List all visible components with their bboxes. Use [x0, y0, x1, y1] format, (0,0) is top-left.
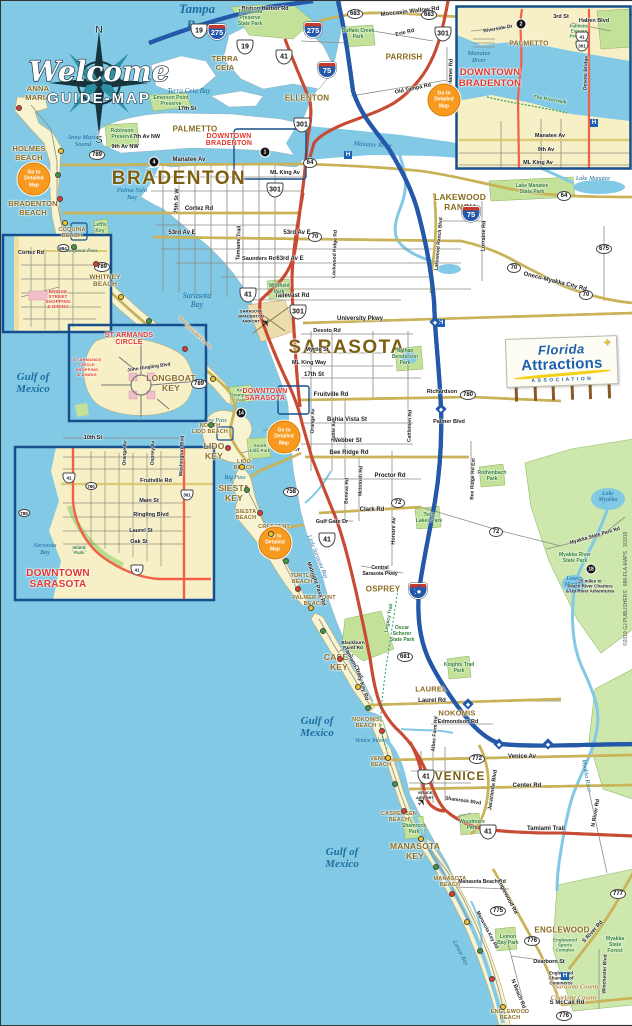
rd-label-john-ringling-blvd: John Ringling Blvd	[127, 362, 171, 373]
route-shield-684: 684	[57, 244, 69, 252]
route-shield-789: 789	[18, 509, 30, 517]
rd-label-lakewood-ranch-blvd: Lakewood Ranch Blvd	[434, 217, 445, 271]
rd-label-albee-farm-rd: Albee Farm Rd	[430, 716, 439, 752]
pk-label-whitfield-park: Whitfield Park	[268, 283, 289, 295]
rd-label-n-river-rd: N River Rd	[591, 799, 602, 828]
route-shield-772: 772	[469, 754, 485, 764]
rd-label-10th-st: 10th St	[84, 435, 102, 441]
beach-access-dot	[379, 728, 385, 734]
pk-label-shamrock-park: Shamrock Park	[402, 823, 426, 835]
ci-label-bradenton-beach: BRADENTON BEACH	[8, 199, 58, 217]
rd-label-63rd-av-e: 63rd Av E	[276, 256, 303, 262]
rd-label-oak-st: Oak St	[130, 539, 147, 545]
go-to-detailed-map-button-2[interactable]: Go to Detailed Map	[428, 84, 461, 117]
rd-label-beneva-rd: Beneva Rd	[344, 478, 351, 504]
rd-label-dearborn-st: Dearborn St	[533, 959, 564, 965]
beach-access-dot	[118, 294, 124, 300]
rd-label-webber-st: Webber St	[332, 438, 362, 444]
rd-label-osprey-av: Osprey Av	[150, 441, 157, 466]
route-shield-41: 41	[63, 473, 76, 484]
route-shield-41: 41	[418, 770, 435, 785]
rd-label-bee-ridge-rd: Bee Ridge Rd	[329, 450, 368, 456]
rd-label-old-tampa-rd: Old Tampa Rd	[394, 82, 431, 96]
route-shield-777: 777	[610, 889, 626, 899]
beach-access-dot	[146, 318, 152, 324]
route-shield-758: 758	[283, 487, 299, 497]
pk-label-myakka-river-state-park: Myakka River State Park	[559, 552, 591, 564]
rd-label-cattlemen-rd: Cattlemen Rd	[406, 410, 413, 442]
route-shield-72: 72	[489, 527, 503, 537]
compass-south-label: S	[95, 134, 102, 146]
pk-label-lake-manatee-state-park: Lake Manatee State Park	[516, 183, 549, 195]
beach-access-dot	[268, 531, 274, 537]
route-shield-301: 301	[267, 183, 284, 198]
rd-label-desoto-rd: Desoto Rd	[313, 328, 341, 334]
beach-access-dot	[244, 487, 250, 493]
rd-label-lockwood-ridge-rd: Lockwood Ridge Rd	[331, 230, 339, 278]
rd-label-lorraine-rd: Lorraine Rd	[480, 220, 487, 251]
wl-label-gulf-of-mexico: Gulf of Mexico	[16, 371, 50, 395]
ci-label-laurel: LAUREL	[415, 685, 447, 694]
route-shield-19: 19	[237, 40, 254, 55]
rd-label-ml-king-way: ML King Way	[292, 360, 326, 366]
rd-label-ringling-blvd: Ringling Blvd	[133, 512, 168, 518]
ci-label-longboat-key: LONGBOAT KEY	[146, 373, 196, 393]
wl-label-gulf-of-mexico: Gulf of Mexico	[300, 715, 334, 739]
rd-label-bahia-vista-st: Bahia Vista St	[327, 417, 367, 423]
logo-sub-text: GUIDE-MAP	[47, 90, 151, 107]
pk-label-woodmere-park: Woodmere Park	[459, 819, 485, 831]
rd-label-orange-av: Orange Av	[310, 408, 317, 433]
beach-access-dot	[401, 808, 407, 814]
ci-label-palmer-point-beach: PALMER POINT BEACH	[292, 595, 336, 607]
hospital-icon: H	[344, 151, 352, 159]
rd-label-englewood-rd: Englewood Rd	[495, 879, 518, 916]
rd-label-edmondson-rd: Edmondson Rd	[438, 719, 479, 725]
wl-label-gulf-of-mexico: Gulf of Mexico	[325, 846, 359, 870]
rd-label-venice-av: Venice Av	[508, 754, 536, 760]
pk-label-island-park: Island Park	[72, 545, 85, 555]
rd-label-manatee-av: Manatee Av	[535, 133, 565, 139]
beach-access-dot	[210, 376, 216, 382]
dt-label-bridge-street-shopping-dining: BRIDGE STREET SHOPPING & DINING	[45, 289, 70, 309]
rd-label-cortez-rd: Cortez Rd	[18, 250, 44, 256]
rd-label-laurel-st: Laurel St	[129, 528, 153, 534]
rd-label-fruitville-rd: Fruitville Rd	[140, 478, 172, 484]
rd-label-riverside-dr: Riverside Dr	[483, 23, 513, 34]
beach-access-dot	[489, 976, 495, 982]
route-shield-19: 19	[191, 24, 208, 39]
rd-label-75th-st-w: 75th St W	[174, 188, 181, 213]
rd-label-bee-ridge-rd-ext: Bee Ridge Rd Ext	[469, 458, 476, 500]
w-label-lake-manatee: Lake Manatee	[576, 176, 610, 182]
ci-label-siesta-key: SIESTA KEY	[218, 483, 249, 503]
rd-label-winchester-blvd: Winchester Blvd	[601, 954, 608, 993]
rd-label-palmer-blvd: Palmer Blvd	[433, 419, 465, 425]
interchange-icon	[542, 738, 553, 749]
ci-label-parrish: PARRISH	[386, 53, 423, 62]
pk-label-the-riverwalk: The Riverwalk	[533, 94, 567, 106]
pk-label-lemon-bay-park: Lemon Bay Park	[497, 934, 518, 946]
co-label-manatee-county: Manatee County	[177, 316, 206, 343]
route-shield-301: 301	[435, 27, 452, 42]
starburst-icon: ✦	[603, 336, 613, 349]
ci-label-manasota-beach: MANASOTA BEACH	[434, 876, 467, 888]
ci-label-coquina-beach: COQUINA BEACH	[58, 227, 85, 239]
w-label-myakka-river: Myakka River	[580, 759, 592, 793]
beach-access-dot	[182, 346, 188, 352]
rd-label-richardson: Richardson	[427, 389, 457, 395]
route-shield-683: 683	[421, 10, 437, 20]
nt-label-25-miles-to-peace-river-charters: 25 miles to Peace River Charters & Up Ri…	[566, 579, 615, 594]
ci-label-palmetto: PALMETTO	[509, 41, 548, 48]
beach-access-dot	[418, 836, 424, 842]
beach-access-dot	[62, 220, 68, 226]
w-label-lake-myakka: Lake Myakka	[599, 491, 618, 503]
rd-label-bishop-harbor-rd: Bishop Harbor Rd	[241, 6, 288, 12]
rd-label-gulf-gate-dr: Gulf Gate Dr	[316, 519, 348, 525]
route-shield-775: 775	[490, 906, 506, 916]
rd-label-erie-rd: Erie Rd	[395, 28, 415, 38]
nt-label-venice-airport: VENICE AIRPORT	[416, 790, 434, 800]
route-shield-275: 275	[208, 24, 227, 40]
beach-access-dot	[464, 919, 470, 925]
guide-map: Tampa BayTerra Ceia BayAnna Maria SoundP…	[0, 0, 632, 1026]
rd-label-manasota-beach-rd: Manasota Beach Rd	[458, 879, 506, 885]
beach-access-dot	[55, 172, 61, 178]
route-shield-789: 789	[191, 379, 207, 389]
rd-label-haben-blvd: Haben Blvd	[579, 18, 609, 24]
rd-label-center-rd: Center Rd	[513, 783, 542, 789]
route-shield-72: 72	[391, 498, 405, 508]
route-shield-776: 776	[524, 936, 540, 946]
ci-label-lido-key: LIDO KEY	[203, 441, 224, 461]
beach-access-dot	[355, 684, 361, 690]
beach-access-dot	[385, 755, 391, 761]
rd-label-tuttle-av: Tuttle Av	[331, 421, 338, 442]
pk-label-rothenbach-park: Rothenbach Park	[478, 470, 507, 482]
ci-label-siesta-beach: SIESTA BEACH	[236, 509, 257, 521]
route-shield-75: 75	[462, 206, 481, 222]
route-shield-75: 75	[318, 62, 337, 78]
ci-label-manasota-key: MANASOTA KEY	[390, 841, 440, 861]
route-shield-301: 301	[576, 41, 589, 52]
interchange-icon	[435, 403, 446, 414]
ci-label-englewood-beach: ENGLEWOOD BEACH	[491, 1009, 529, 1021]
w-label-venice-inlet: Venice Inlet	[355, 738, 383, 744]
w-label-longboat-pass: Longboat Pass	[65, 248, 98, 254]
florida-attractions-billboard: Florida ✦ Attractions ASSOCIATION	[505, 335, 619, 402]
beach-access-dot	[225, 445, 231, 451]
pk-label-buffalo-creek-park: Buffalo Creek Park	[342, 28, 375, 40]
beach-access-dot	[449, 891, 455, 897]
beach-access-dot	[58, 148, 64, 154]
rd-label-desoto-bridge: Desoto Bridge	[582, 56, 589, 90]
logo-script-text: Welcome	[29, 55, 170, 88]
ci-label-whitney-beach: WHITNEY BEACH	[89, 274, 120, 288]
beach-access-dot	[308, 605, 314, 611]
beach-access-dot	[57, 196, 63, 202]
route-shield-41: 41	[480, 825, 497, 840]
route-shield-301: 301	[294, 118, 311, 133]
route-shield-41: 41	[576, 32, 589, 43]
route-shield-780: 780	[460, 390, 476, 400]
ci-label-terra-ceia: TERRA CEIA	[212, 54, 239, 72]
beach-access-dot	[208, 422, 214, 428]
beach-access-dot	[365, 705, 371, 711]
nt-label-sarasota-bradenton-airport: SARASOTA BRADENTON AIRPORT	[238, 309, 263, 324]
w-label-little-sarasota-bay: Little Sarasota Bay	[306, 534, 329, 579]
rd-label-myakka-state-park-rd: Myakka State Park Rd	[569, 526, 621, 546]
dt-label-downtown-sarasota: DOWNTOWN SARASOTA	[26, 568, 90, 590]
rd-label-n-beach-rd: N Beach Rd	[509, 979, 526, 1010]
dt-label-downtown-bradenton: DOWNTOWN BRADENTON	[459, 67, 521, 89]
beach-access-dot	[93, 261, 99, 267]
beach-access-dot	[320, 628, 326, 634]
rd-label-manatee-av: Manatee Av	[173, 157, 206, 163]
rd-label-central-sarasota-pkwy: Central Sarasota Pkwy	[362, 565, 397, 577]
route-shield-776: 776	[556, 1011, 572, 1021]
go-to-detailed-map-button-3[interactable]: Go to Detailed Map	[268, 421, 301, 454]
route-shield-275: 275	[304, 22, 323, 38]
rd-label-oneco-myakka-city-rd: Oneco-Myakka City Rd	[523, 271, 588, 293]
rd-label-ml-king-av: ML King Av	[523, 160, 553, 166]
rd-label-blackburn-point-rd: Blackburn Point Rd	[341, 641, 364, 651]
beach-access-dot	[239, 464, 245, 470]
dt-label-downtown-sarasota: DOWNTOWN SARASOTA	[242, 388, 287, 402]
welcome-guide-map-logo: N S Welcome GUIDE-MAP	[13, 19, 188, 147]
co-label-sarasota-county: Sarasota County	[555, 984, 600, 991]
copyright-text: ©2019 GJ PUBLISHERS 888-FLA-MAPS 3/2019	[623, 532, 629, 646]
beach-access-dot	[71, 244, 77, 250]
route-shield-683: 683	[347, 9, 363, 19]
rd-label-tamiami-trail: Tamiami Trail	[235, 226, 242, 261]
beach-access-dot	[295, 586, 301, 592]
route-shield-41: 41	[276, 50, 293, 65]
rd-label-cortez-rd: Cortez Rd	[185, 206, 213, 212]
pk-label-myakka-state-forest: Myakka State Forest	[606, 936, 624, 954]
w-label-lower-myakka-lake: Lower Myakka Lake	[565, 576, 584, 594]
attraction-marker-4: 4	[149, 157, 160, 168]
rd-label-ml-king-av: ML King Av	[270, 170, 300, 176]
route-shield-301: 301	[290, 305, 307, 320]
cl-label-sarasota: SARASOTA	[288, 337, 405, 359]
route-shield-301: 301	[181, 490, 194, 501]
pk-label-leffis-key: Leffis Key	[93, 222, 106, 234]
rd-label-tamiami-trail: Tamiami Trail	[342, 646, 364, 679]
ci-label-lakewood-ranch: LAKEWOOD RANCH	[434, 192, 486, 212]
label-layer: Tampa BayTerra Ceia BayAnna Maria SoundP…	[1, 1, 632, 1025]
beach-access-dot	[500, 1004, 506, 1010]
ci-label-nokomis: NOKOMIS	[438, 709, 475, 718]
w-label-manatee-river: Manatee River	[468, 50, 491, 64]
rd-label-casey-key-rd: Casey Key Rd	[352, 665, 369, 702]
rd-label-s-mccall-rd: S McCall Rd	[550, 1000, 585, 1006]
route-shield-789: 789	[89, 150, 105, 160]
rd-label-tamiami-trail: Tamiami Trail	[527, 826, 565, 832]
cm-label-venice: VENICE	[435, 769, 486, 783]
co-label-sarasota-county: Sarasota County	[184, 324, 213, 351]
pk-label-palmetto-estuary-preserve: Palmetto Estuary Preserve	[569, 24, 588, 39]
rd-label-university-pkwy: University Pkwy	[337, 316, 383, 322]
beach-access-dot	[477, 948, 483, 954]
pk-label-englewood-sports-complex: Englewood Sports Complex	[553, 938, 577, 953]
route-shield-780: 780	[85, 482, 97, 490]
w-label-palma-sola-bay: Palma Sola Bay	[117, 187, 147, 201]
route-shield-41: 41	[319, 533, 336, 548]
route-shield-675: 675	[596, 244, 612, 254]
rd-label-mcintosh-rd: McIntosh Rd	[357, 466, 364, 496]
rd-label-moccasin-wallow-rd: Moccasin Wallow Rd	[380, 6, 439, 18]
pk-label-nathan-benderson-park: Nathan Benderson Park	[392, 348, 418, 366]
rd-label-53rd-av-e: 53rd Av E	[283, 230, 310, 236]
ci-label-ellenton: ELLENTON	[285, 94, 330, 103]
route-shield-41: 41	[240, 288, 257, 303]
w-label-sarasota-bay: Sarasota Bay	[33, 542, 56, 556]
pk-label-legacy-trail: Legacy Trail	[384, 603, 395, 633]
rd-label-53rd-av-e: 53rd Av E	[168, 230, 195, 236]
dt-label-st-armands-circle: ST ARMANDS CIRCLE	[105, 332, 153, 346]
rd-label-washington-blvd: Washington Blvd	[178, 436, 185, 477]
rd-label-tallevast-rd: Tallevast Rd	[275, 293, 310, 299]
ci-label-caspersen-beach: CASPERSEN BEACH	[381, 811, 417, 823]
pk-label-south-lido-park: South Lido Park	[250, 443, 271, 453]
cl-label-bradenton: BRADENTON	[112, 168, 247, 190]
rd-label-honore-av: Honore Av	[391, 517, 398, 545]
co-label-charlotte-county: Charlotte County	[551, 995, 597, 1002]
rd-label-proctor-rd: Proctor Rd	[374, 473, 405, 479]
beach-access-dot	[392, 781, 398, 787]
rd-label-jacaranda-blvd: Jacaranda Blvd	[487, 769, 499, 810]
rd-label-s-river-rd: S River Rd	[581, 920, 604, 945]
route-shield-64: 64	[303, 158, 317, 168]
ci-label-nokomis-beach: NOKOMIS BEACH	[352, 717, 380, 729]
hospital-icon: H	[590, 119, 598, 127]
rd-label-9th-av: 9th Av	[538, 147, 554, 153]
route-shield-64: 64	[557, 191, 571, 201]
ci-label-casey-key: CASEY KEY	[324, 652, 354, 672]
beach-access-dot	[433, 864, 439, 870]
ci-label-osprey: OSPREY	[366, 585, 401, 594]
w-label-lemon-bay: Lemon Bay	[451, 940, 469, 967]
go-to-detailed-map-button-1[interactable]: Go to Detailed Map	[18, 163, 51, 196]
beach-access-dot	[257, 510, 263, 516]
w-label-manatee-river: Manatee River	[354, 140, 393, 150]
hospital-icon: H	[561, 972, 569, 980]
attraction-marker-1: 1	[260, 147, 271, 158]
dt-label-downtown-bradenton: DOWNTOWN BRADENTON	[206, 133, 252, 147]
route-shield-70: 70	[507, 263, 521, 273]
rd-label-saunders-rd: Saunders Rd	[242, 256, 276, 262]
ci-label-englewood: ENGLEWOOD	[534, 926, 589, 935]
route-shield-681: 681	[397, 652, 413, 662]
rd-label-orange-av: Orange Av	[122, 440, 129, 465]
beach-access-dot	[337, 656, 343, 662]
w-label-sarasota-bay: Sarasota Bay	[183, 291, 211, 309]
pk-label-knights-trail-park: Knights Trail Park	[444, 662, 474, 674]
route-shield-70: 70	[579, 290, 593, 300]
airport-icon: ✈	[414, 794, 430, 810]
rd-label-myrtle-st: Myrtle St	[305, 347, 328, 353]
interchange-icon	[462, 698, 473, 709]
pk-label-ken-thompson-park: Ken Thompson Park	[230, 388, 253, 403]
airport-icon: ✈	[258, 315, 274, 331]
dt-label-st-armands-circle-shopping-dinin: ST ARMANDS CIRCLE SHOPPING & DINING	[73, 357, 102, 377]
rd-label-clark-rd: Clark Rd	[360, 507, 385, 513]
beach-access-dot	[283, 558, 289, 564]
pk-label-twin-lakes-park: Twin Lakes Park	[416, 512, 442, 524]
rd-label-laurel-rd: Laurel Rd	[418, 698, 446, 704]
w-label-new-pass: New Pass	[203, 418, 227, 424]
interchange-icon	[493, 738, 504, 749]
route-shield-41: 41	[131, 565, 144, 576]
route-shield-70: 70	[308, 232, 322, 242]
rd-label-midnight-pass-rd: Midnight Pass Rd	[305, 561, 326, 606]
w-label-big-pass: Big Pass	[224, 475, 245, 481]
attraction-marker-14: 14	[236, 408, 247, 419]
rd-label-main-st: Main St	[139, 498, 159, 504]
attraction-marker-18: 18	[586, 564, 597, 575]
rd-label-17th-st: 17th St	[304, 372, 324, 378]
pk-label-terra-ceia-preserve-state-park: Terra Ceia Preserve State Park	[238, 9, 262, 27]
rd-label-shamrock-blvd: Shamrock Blvd	[445, 795, 482, 806]
pk-label-oscar-scherer-state-park: Oscar Scherer State Park	[390, 625, 414, 643]
compass-north-label: N	[95, 24, 103, 36]
rd-label-3rd-st: 3rd St	[553, 14, 569, 20]
ci-label-turtle-beach: TURTLE BEACH	[291, 573, 314, 585]
attraction-marker-2: 2	[516, 19, 527, 30]
rd-label-manasota-key-rd: Manasota Key Rd	[475, 910, 500, 950]
interchange-icon	[413, 585, 424, 596]
go-to-detailed-map-button-4[interactable]: Go to Detailed Map	[259, 527, 292, 560]
rd-label-fruitville-rd: Fruitville Rd	[314, 392, 349, 398]
